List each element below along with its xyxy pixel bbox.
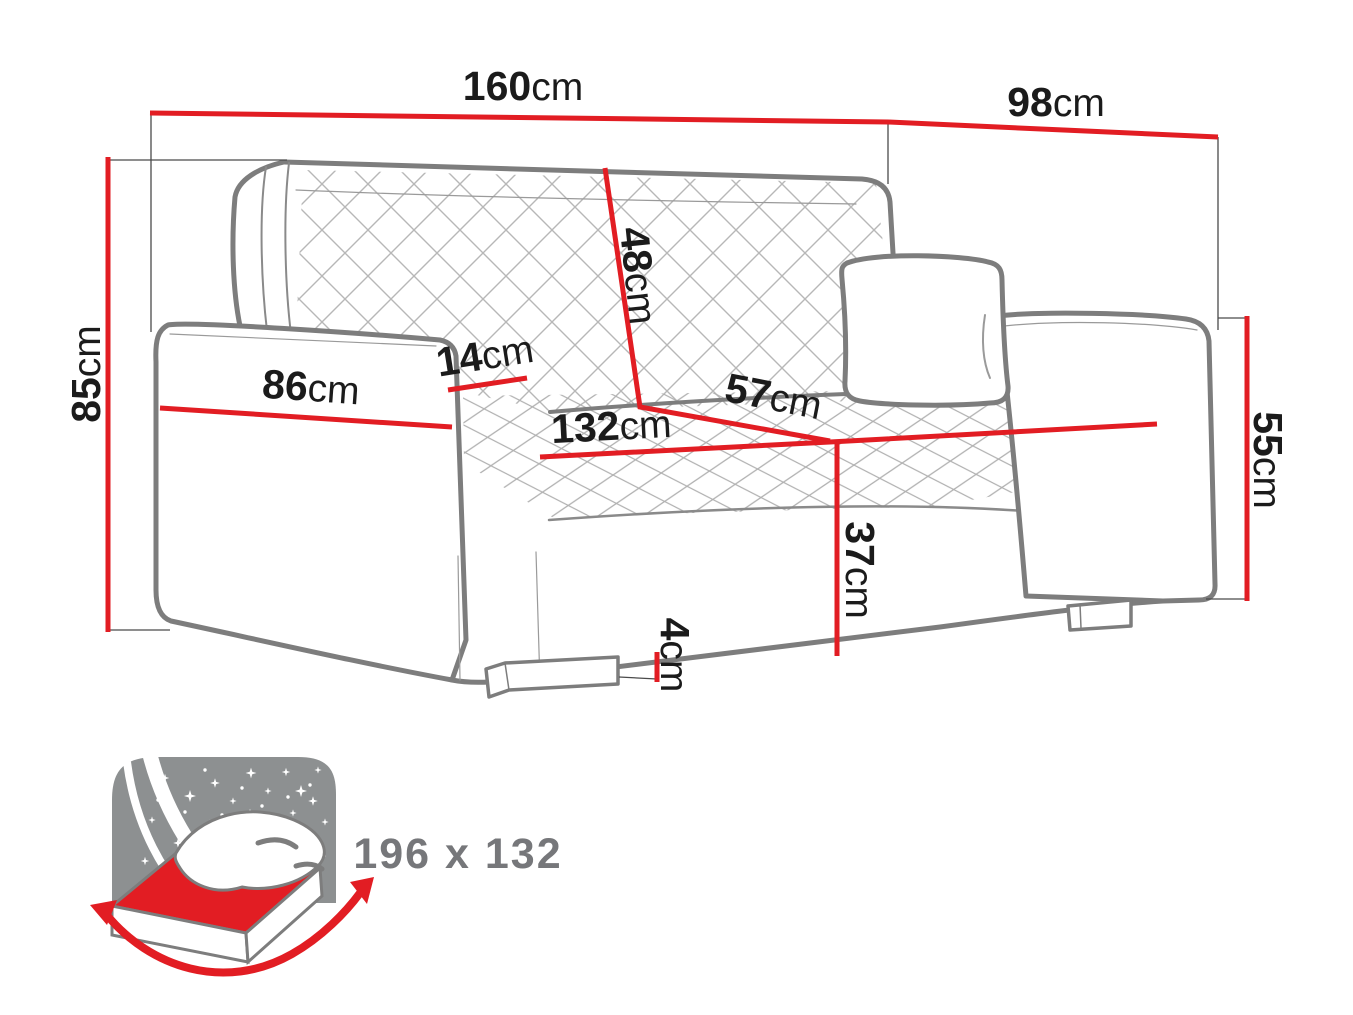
dim-label-seat-width: 132cm — [550, 400, 673, 452]
backrest-pleat-line — [262, 167, 267, 331]
dim-label-leg-height: 4cm — [652, 618, 698, 693]
dim-label-armrest-length: 86cm — [261, 361, 362, 414]
sofa-bed-icon — [90, 751, 374, 973]
backrest-pleat-line — [285, 163, 291, 334]
dim-label-overall-width: 160cm — [463, 63, 583, 109]
rear-right-leg — [1068, 600, 1131, 630]
dim-label-side-height: 55cm — [1245, 411, 1291, 509]
sleeping-area-size-label: 196 x 132 — [353, 830, 562, 878]
right-armrest — [998, 313, 1215, 601]
diagram-svg: 160cm 98cm 85cm 48cm 14cm 86cm 57cm 132c… — [0, 0, 1353, 1015]
dim-label-seat-height: 37cm — [837, 521, 883, 619]
sofa-dimensions-diagram: 160cm 98cm 85cm 48cm 14cm 86cm 57cm 132c… — [0, 0, 1353, 1015]
pillow — [842, 256, 1008, 405]
front-leg — [486, 657, 618, 697]
dim-label-overall-height: 85cm — [63, 325, 109, 423]
dim-label-overall-depth: 98cm — [1007, 79, 1105, 125]
